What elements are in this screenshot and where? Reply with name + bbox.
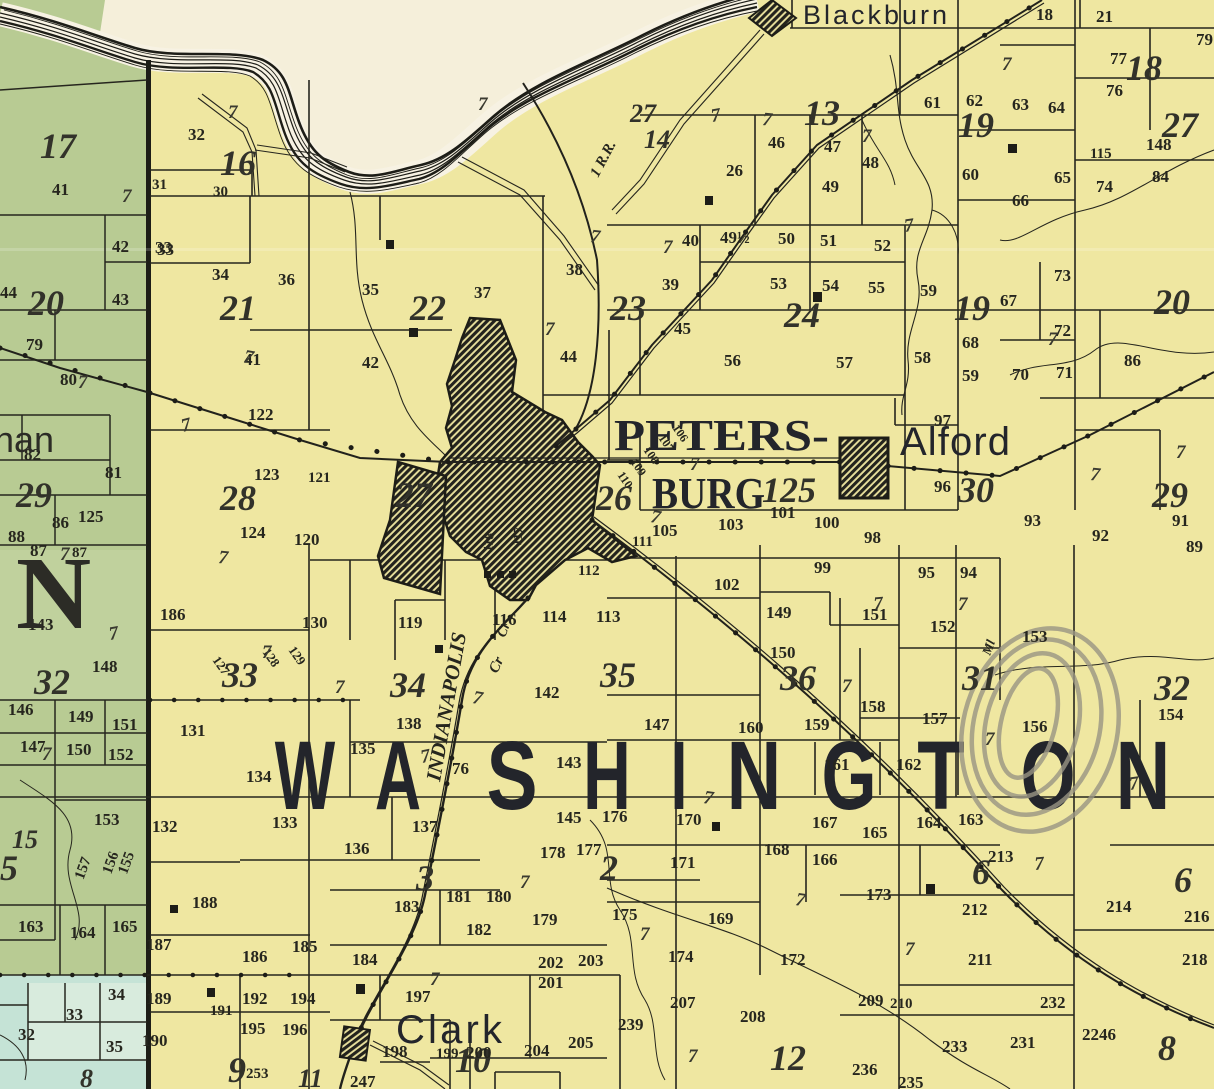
svg-text:7: 7 <box>1176 442 1187 463</box>
svg-text:218: 218 <box>1182 950 1208 969</box>
svg-text:35: 35 <box>106 1037 123 1056</box>
svg-text:31: 31 <box>152 177 167 193</box>
svg-text:32: 32 <box>33 662 70 702</box>
svg-text:195: 195 <box>240 1019 266 1038</box>
svg-text:184: 184 <box>352 950 378 969</box>
svg-text:42: 42 <box>362 353 379 372</box>
svg-text:118: 118 <box>480 532 497 553</box>
svg-text:164: 164 <box>70 923 96 942</box>
svg-text:164: 164 <box>916 813 942 832</box>
svg-text:179: 179 <box>532 910 558 929</box>
svg-text:180: 180 <box>486 887 512 906</box>
svg-text:2: 2 <box>599 848 618 888</box>
svg-text:8: 8 <box>80 1064 93 1089</box>
svg-text:19: 19 <box>958 105 994 145</box>
svg-text:39: 39 <box>662 275 679 294</box>
svg-text:12: 12 <box>770 1038 806 1078</box>
svg-text:152: 152 <box>930 617 956 636</box>
svg-text:163: 163 <box>18 917 44 936</box>
svg-text:7: 7 <box>42 744 53 765</box>
svg-text:151: 151 <box>112 715 138 734</box>
svg-text:7: 7 <box>985 729 996 750</box>
svg-text:216: 216 <box>1184 907 1210 926</box>
svg-text:38: 38 <box>566 260 583 279</box>
svg-text:178: 178 <box>540 843 566 862</box>
svg-text:49: 49 <box>822 177 839 196</box>
svg-text:92: 92 <box>1092 526 1109 545</box>
svg-text:89: 89 <box>1186 537 1203 556</box>
svg-text:50: 50 <box>778 229 795 248</box>
svg-text:44: 44 <box>0 283 18 302</box>
svg-text:131: 131 <box>180 721 206 740</box>
svg-text:2246: 2246 <box>1082 1025 1116 1044</box>
svg-text:103: 103 <box>718 515 744 534</box>
svg-text:N: N <box>16 536 91 651</box>
svg-text:80: 80 <box>60 370 77 389</box>
svg-text:214: 214 <box>1106 897 1132 916</box>
svg-text:121: 121 <box>308 470 331 486</box>
svg-text:15: 15 <box>12 825 38 854</box>
svg-text:29: 29 <box>1151 475 1188 515</box>
svg-text:207: 207 <box>670 993 696 1012</box>
svg-text:185: 185 <box>292 937 318 956</box>
svg-text:33: 33 <box>155 238 172 257</box>
svg-text:31: 31 <box>961 658 998 698</box>
svg-text:32: 32 <box>188 125 205 144</box>
svg-text:181: 181 <box>446 887 472 906</box>
svg-text:17: 17 <box>40 126 78 166</box>
svg-text:199: 199 <box>436 1046 459 1062</box>
svg-text:173: 173 <box>866 885 892 904</box>
svg-text:188: 188 <box>192 893 218 912</box>
svg-text:119: 119 <box>398 613 423 632</box>
svg-text:56: 56 <box>724 351 741 370</box>
svg-text:99: 99 <box>814 558 831 577</box>
svg-text:161: 161 <box>824 755 850 774</box>
svg-text:41: 41 <box>52 180 69 199</box>
svg-text:115: 115 <box>1090 146 1112 162</box>
svg-text:149: 149 <box>68 707 94 726</box>
svg-text:169: 169 <box>708 909 734 928</box>
svg-text:7: 7 <box>430 969 441 990</box>
svg-text:Alford: Alford <box>900 420 1010 464</box>
svg-text:137: 137 <box>412 817 438 836</box>
svg-text:84: 84 <box>1152 167 1170 186</box>
svg-text:7: 7 <box>228 102 239 123</box>
svg-text:239: 239 <box>618 1015 644 1034</box>
svg-text:182: 182 <box>466 920 492 939</box>
svg-text:16: 16 <box>220 143 256 183</box>
svg-text:157: 157 <box>922 709 948 728</box>
svg-text:29: 29 <box>15 475 52 515</box>
svg-text:20: 20 <box>27 283 64 323</box>
svg-text:101: 101 <box>770 503 796 522</box>
svg-text:32: 32 <box>1153 668 1190 708</box>
svg-text:53: 53 <box>770 274 787 293</box>
svg-text:142: 142 <box>534 683 560 702</box>
svg-text:7: 7 <box>1048 329 1059 350</box>
svg-text:7: 7 <box>122 186 133 207</box>
svg-text:19: 19 <box>954 288 990 328</box>
svg-text:7: 7 <box>335 677 346 698</box>
svg-text:60: 60 <box>962 165 979 184</box>
svg-text:160: 160 <box>738 718 764 737</box>
svg-text:S: S <box>486 721 537 830</box>
svg-text:52: 52 <box>874 236 891 255</box>
svg-text:71: 71 <box>1056 363 1073 382</box>
svg-text:111: 111 <box>632 534 653 550</box>
svg-text:232: 232 <box>1040 993 1066 1012</box>
svg-text:156: 156 <box>1022 717 1048 736</box>
svg-text:42: 42 <box>112 237 129 256</box>
svg-text:98: 98 <box>864 528 881 547</box>
svg-text:167: 167 <box>812 813 838 832</box>
svg-text:49½: 49½ <box>720 228 750 247</box>
svg-text:A: A <box>375 723 421 830</box>
svg-text:200: 200 <box>466 1043 492 1062</box>
svg-text:192: 192 <box>242 989 268 1008</box>
svg-text:79: 79 <box>1196 30 1213 49</box>
svg-text:27: 27 <box>629 99 657 128</box>
svg-text:96: 96 <box>934 477 951 496</box>
svg-text:253: 253 <box>246 1066 269 1082</box>
svg-text:165: 165 <box>862 823 888 842</box>
svg-text:21: 21 <box>1096 7 1113 26</box>
svg-text:190: 190 <box>142 1031 168 1050</box>
svg-text:117: 117 <box>509 526 526 547</box>
svg-text:35: 35 <box>362 280 379 299</box>
svg-text:N: N <box>1116 722 1171 830</box>
svg-text:33: 33 <box>66 1005 83 1024</box>
svg-text:8: 8 <box>1158 1028 1176 1068</box>
svg-text:159: 159 <box>804 715 830 734</box>
svg-text:30: 30 <box>957 470 994 510</box>
svg-text:147: 147 <box>644 715 670 734</box>
svg-text:152: 152 <box>108 745 134 764</box>
svg-text:59: 59 <box>920 281 937 300</box>
svg-text:62: 62 <box>966 91 983 110</box>
svg-text:148: 148 <box>92 657 118 676</box>
svg-text:183: 183 <box>394 897 420 916</box>
svg-text:134: 134 <box>246 767 272 786</box>
svg-text:112: 112 <box>578 563 600 579</box>
svg-text:40: 40 <box>682 231 699 250</box>
svg-text:45: 45 <box>674 319 691 338</box>
svg-text:133: 133 <box>272 813 298 832</box>
svg-text:130: 130 <box>302 613 328 632</box>
svg-text:73: 73 <box>1054 266 1071 285</box>
svg-text:11: 11 <box>298 1064 323 1089</box>
svg-text:7: 7 <box>688 1046 699 1067</box>
svg-text:175: 175 <box>612 905 638 924</box>
svg-text:100: 100 <box>814 513 840 532</box>
svg-text:7: 7 <box>663 237 674 258</box>
svg-text:93: 93 <box>1024 511 1041 530</box>
svg-text:7: 7 <box>262 642 273 663</box>
svg-text:34: 34 <box>389 665 426 705</box>
svg-text:213: 213 <box>988 847 1014 866</box>
svg-text:34: 34 <box>108 985 126 1004</box>
svg-text:7: 7 <box>862 126 873 147</box>
svg-text:7: 7 <box>958 594 969 615</box>
svg-text:172: 172 <box>780 950 806 969</box>
svg-text:204: 204 <box>524 1041 550 1060</box>
svg-text:150: 150 <box>770 643 796 662</box>
svg-text:189: 189 <box>146 989 172 1008</box>
svg-text:21: 21 <box>219 288 256 328</box>
svg-text:5: 5 <box>0 848 18 888</box>
svg-text:7: 7 <box>545 319 556 340</box>
svg-text:58: 58 <box>914 348 931 367</box>
svg-text:187: 187 <box>146 935 172 954</box>
svg-text:97: 97 <box>934 411 952 430</box>
svg-text:18: 18 <box>1126 48 1162 88</box>
svg-text:168: 168 <box>764 840 790 859</box>
svg-text:70: 70 <box>1012 365 1029 384</box>
svg-text:36: 36 <box>278 270 295 289</box>
svg-text:114: 114 <box>542 607 567 626</box>
svg-text:186: 186 <box>242 947 268 966</box>
svg-text:63: 63 <box>1012 95 1029 114</box>
svg-text:158: 158 <box>860 697 886 716</box>
svg-text:153: 153 <box>1022 627 1048 646</box>
svg-text:94: 94 <box>960 563 978 582</box>
svg-text:113: 113 <box>596 607 621 626</box>
svg-text:44: 44 <box>560 347 578 366</box>
svg-text:202: 202 <box>538 953 564 972</box>
svg-text:235: 235 <box>898 1073 924 1089</box>
svg-text:135: 135 <box>350 739 376 758</box>
svg-text:153: 153 <box>94 810 120 829</box>
svg-text:7: 7 <box>640 924 651 945</box>
svg-text:7: 7 <box>478 94 489 115</box>
svg-text:22: 22 <box>409 288 446 328</box>
svg-text:163: 163 <box>958 810 984 829</box>
svg-text:132: 132 <box>152 817 178 836</box>
svg-text:231: 231 <box>1010 1033 1036 1052</box>
svg-text:13: 13 <box>804 93 840 133</box>
svg-text:20: 20 <box>1153 282 1190 322</box>
svg-text:194: 194 <box>290 989 316 1008</box>
svg-text:211: 211 <box>968 950 993 969</box>
svg-text:203: 203 <box>578 951 604 970</box>
svg-text:171: 171 <box>670 853 696 872</box>
svg-text:76: 76 <box>452 759 469 778</box>
svg-text:34: 34 <box>212 265 230 284</box>
svg-text:136: 136 <box>344 839 370 858</box>
svg-text:191: 191 <box>210 1003 233 1019</box>
svg-text:102: 102 <box>714 575 740 594</box>
svg-text:166: 166 <box>812 850 838 869</box>
svg-text:47: 47 <box>824 137 842 156</box>
svg-text:43: 43 <box>112 290 129 309</box>
svg-text:64: 64 <box>1048 98 1066 117</box>
svg-text:210: 210 <box>890 996 913 1012</box>
svg-text:196: 196 <box>282 1020 308 1039</box>
svg-text:37: 37 <box>474 283 492 302</box>
svg-text:146: 146 <box>8 700 34 719</box>
svg-text:7: 7 <box>842 676 853 697</box>
svg-text:197: 197 <box>405 987 431 1006</box>
svg-text:165: 165 <box>112 917 138 936</box>
svg-text:124: 124 <box>240 523 266 542</box>
svg-text:176: 176 <box>602 807 628 826</box>
svg-text:79: 79 <box>26 335 43 354</box>
svg-text:18: 18 <box>1036 5 1053 24</box>
svg-text:7: 7 <box>78 372 89 393</box>
svg-text:174: 174 <box>668 947 694 966</box>
svg-text:149: 149 <box>766 603 792 622</box>
svg-text:154: 154 <box>1158 705 1184 724</box>
svg-text:7: 7 <box>520 872 531 893</box>
svg-text:48: 48 <box>862 153 879 172</box>
svg-text:54: 54 <box>822 276 840 295</box>
svg-text:51: 51 <box>820 231 837 250</box>
svg-text:28: 28 <box>219 478 256 518</box>
svg-text:86: 86 <box>52 513 69 532</box>
svg-text:61: 61 <box>924 93 941 112</box>
svg-text:150: 150 <box>66 740 92 759</box>
svg-text:86: 86 <box>1124 351 1141 370</box>
svg-text:162: 162 <box>896 755 922 774</box>
svg-text:14: 14 <box>644 125 670 154</box>
svg-text:55: 55 <box>868 278 885 297</box>
svg-text:3: 3 <box>415 858 434 898</box>
svg-text:7: 7 <box>690 454 701 475</box>
svg-text:N: N <box>727 722 782 830</box>
svg-text:46: 46 <box>768 133 785 152</box>
svg-text:27: 27 <box>395 475 434 515</box>
svg-text:7: 7 <box>1002 54 1013 75</box>
svg-text:198: 198 <box>382 1042 408 1061</box>
svg-text:32: 32 <box>18 1025 35 1044</box>
svg-text:26: 26 <box>726 161 743 180</box>
svg-text:81: 81 <box>105 463 122 482</box>
svg-text:35: 35 <box>599 655 636 695</box>
svg-text:236: 236 <box>852 1060 878 1079</box>
svg-text:170: 170 <box>676 810 702 829</box>
svg-text:67: 67 <box>1000 291 1018 310</box>
svg-text:65: 65 <box>1054 168 1071 187</box>
svg-text:77: 77 <box>1110 49 1128 68</box>
svg-text:6: 6 <box>1174 860 1192 900</box>
svg-text:212: 212 <box>962 900 988 919</box>
svg-text:57: 57 <box>836 353 854 372</box>
svg-text:66: 66 <box>1012 191 1029 210</box>
svg-text:9: 9 <box>228 1050 246 1089</box>
svg-text:36: 36 <box>779 658 816 698</box>
svg-text:145: 145 <box>556 808 582 827</box>
svg-text:120: 120 <box>294 530 320 549</box>
svg-text:Blackburn: Blackburn <box>803 0 947 30</box>
svg-text:BURG: BURG <box>652 469 765 518</box>
svg-text:186: 186 <box>160 605 186 624</box>
svg-text:7: 7 <box>905 939 916 960</box>
svg-text:208: 208 <box>740 1007 766 1026</box>
svg-text:30: 30 <box>213 184 228 200</box>
svg-text:209: 209 <box>858 991 884 1010</box>
svg-text:177: 177 <box>576 840 602 859</box>
svg-text:23: 23 <box>609 288 646 328</box>
svg-text:143: 143 <box>556 753 582 772</box>
svg-text:91: 91 <box>1172 511 1189 530</box>
svg-text:122: 122 <box>248 405 274 424</box>
svg-text:76: 76 <box>1106 81 1123 100</box>
svg-text:74: 74 <box>1096 177 1114 196</box>
svg-text:125: 125 <box>78 507 104 526</box>
svg-text:247: 247 <box>350 1072 376 1089</box>
svg-text:201: 201 <box>538 973 564 992</box>
svg-text:233: 233 <box>942 1037 968 1056</box>
svg-text:95: 95 <box>918 563 935 582</box>
svg-text:148: 148 <box>1146 135 1172 154</box>
svg-text:123: 123 <box>254 465 280 484</box>
svg-text:205: 205 <box>568 1033 594 1052</box>
svg-text:68: 68 <box>962 333 979 352</box>
svg-text:59: 59 <box>962 366 979 385</box>
svg-text:han: han <box>0 419 54 460</box>
svg-text:138: 138 <box>396 714 422 733</box>
